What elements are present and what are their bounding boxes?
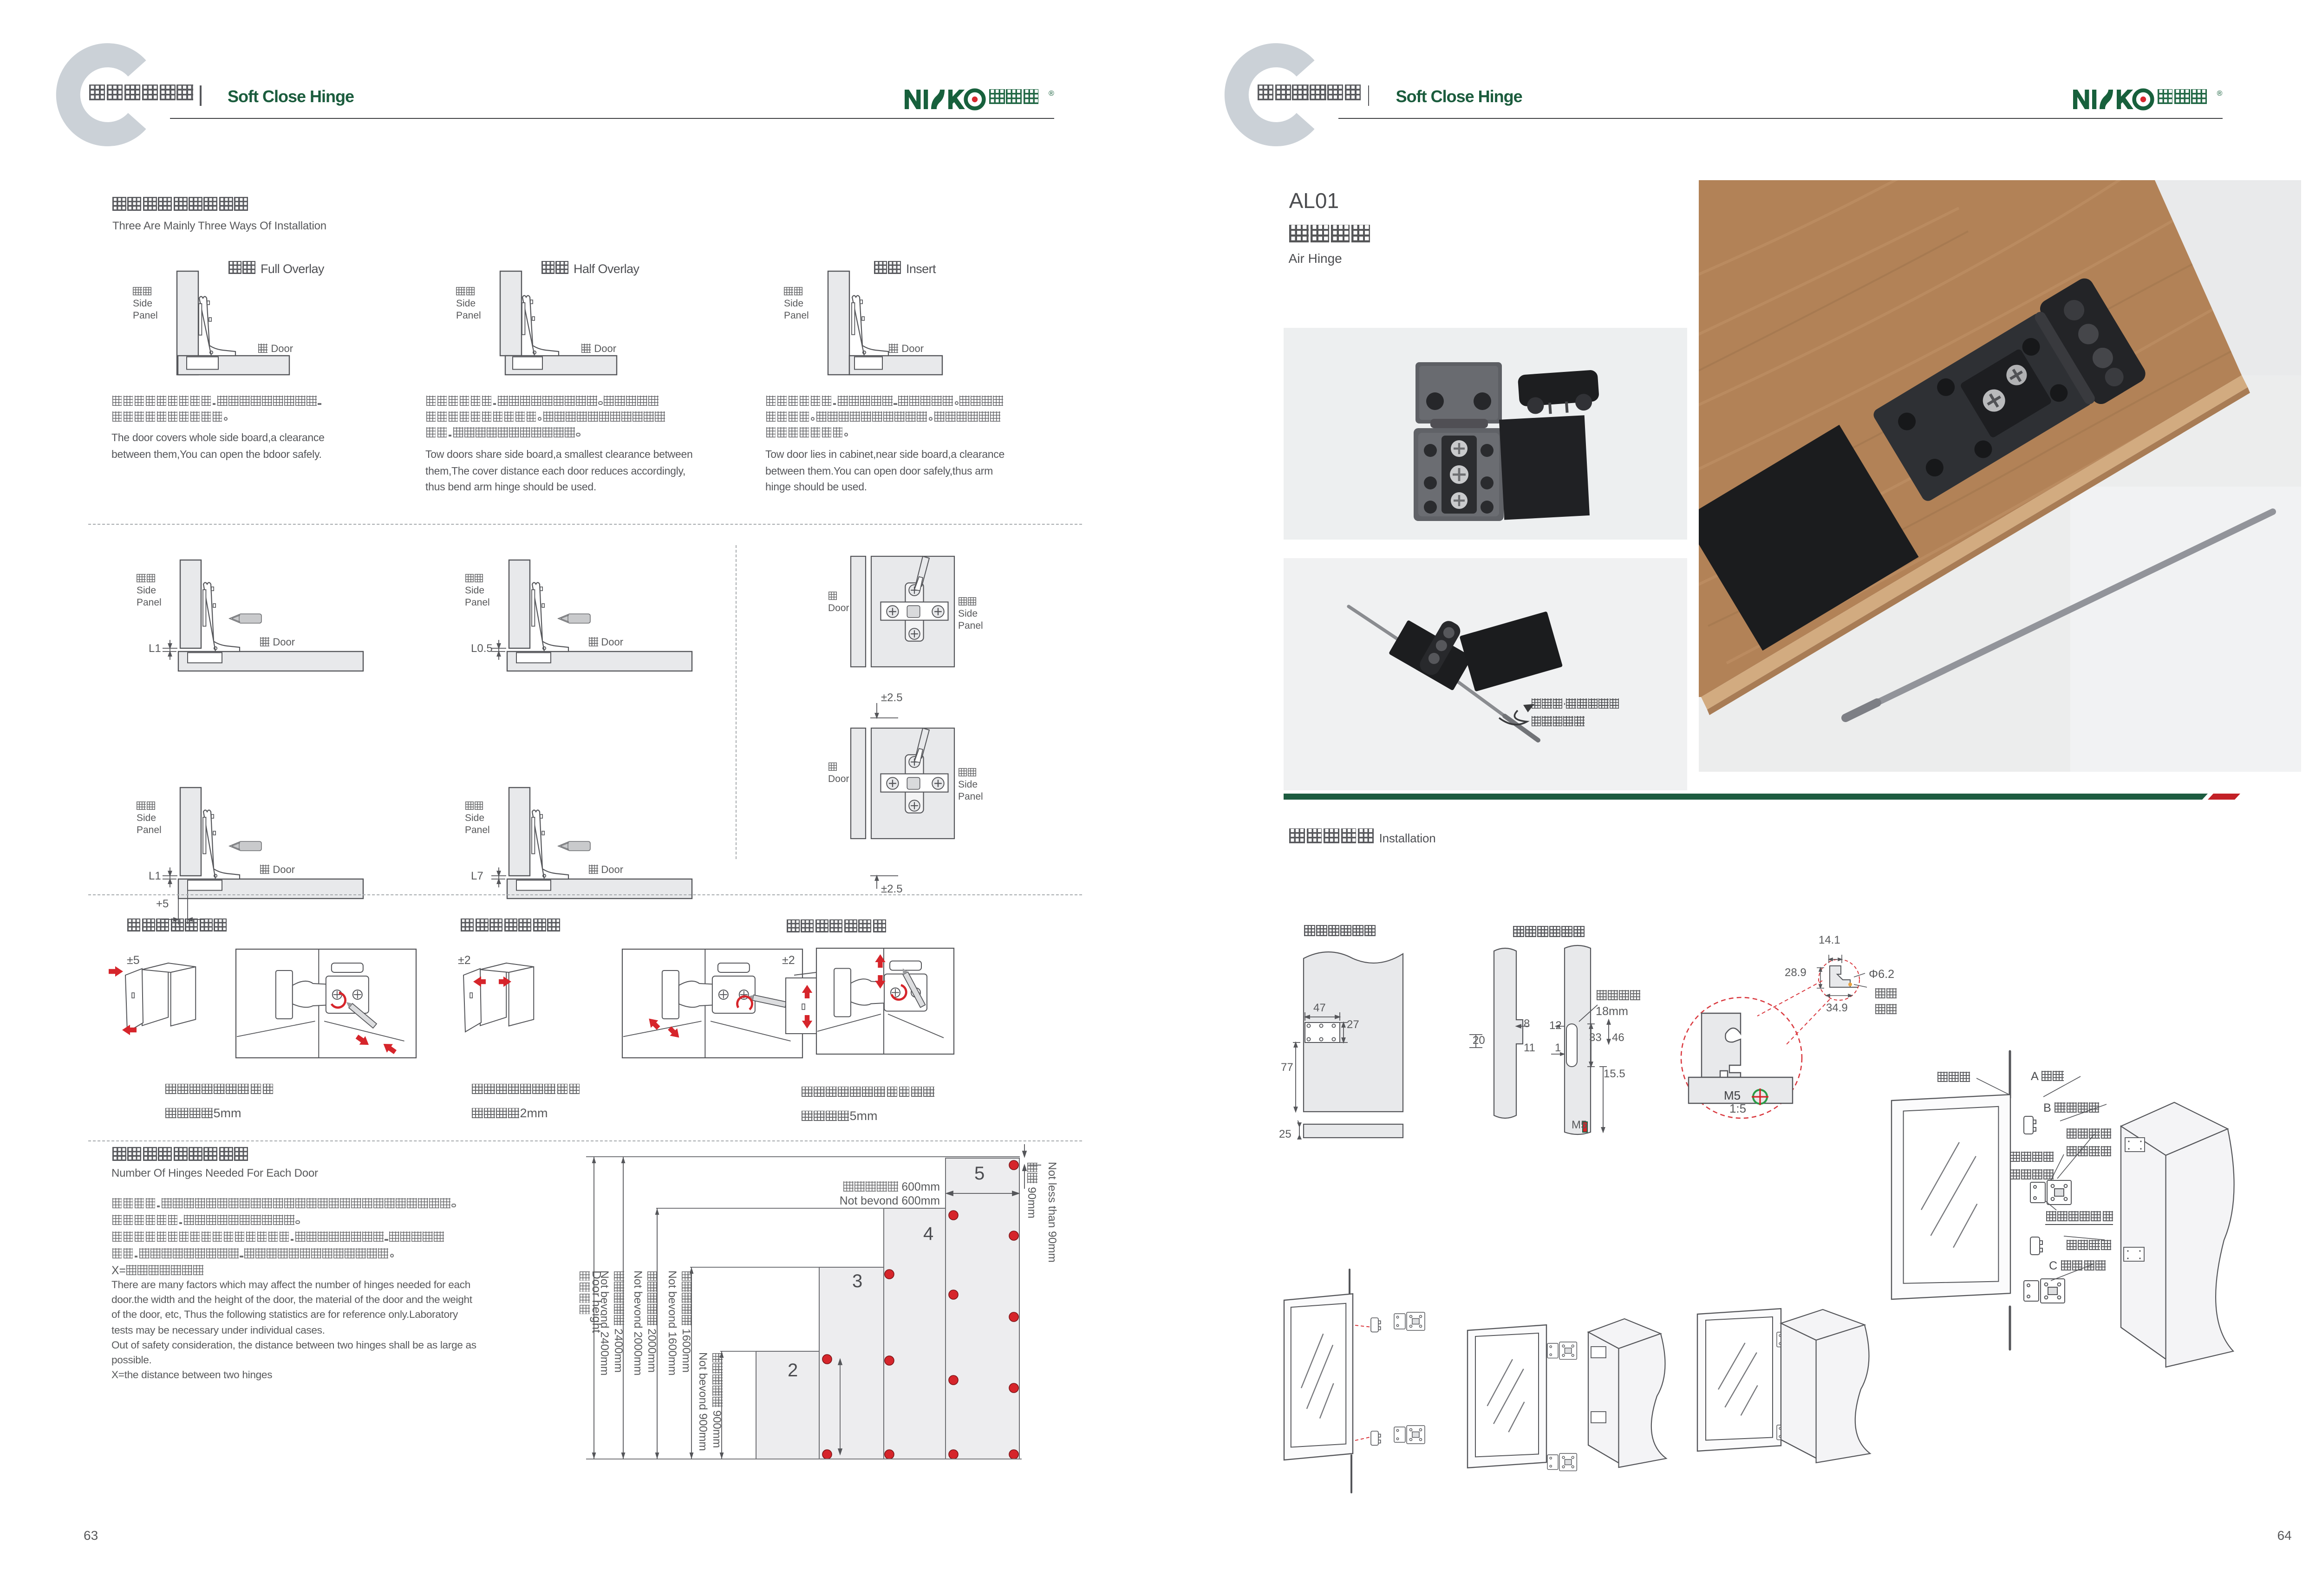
svg-text:5: 5 [974, 1163, 985, 1184]
svg-text:4: 4 [923, 1224, 933, 1244]
svg-text:2: 2 [788, 1360, 798, 1381]
svg-text:3: 3 [852, 1271, 862, 1291]
